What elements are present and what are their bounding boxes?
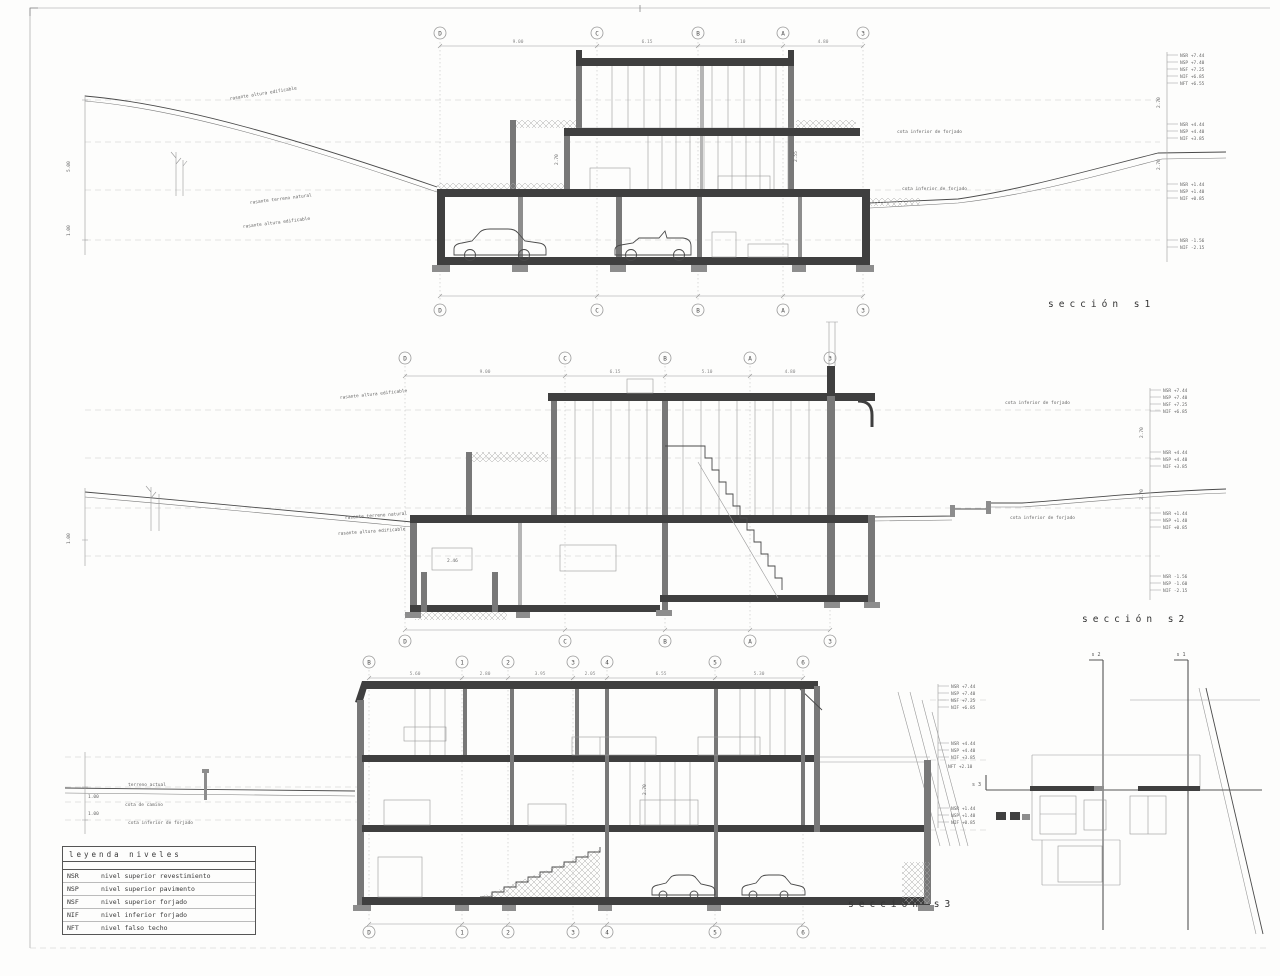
grid-bubble-label: 5 (713, 660, 717, 667)
s3-datum-lines (65, 700, 990, 830)
s1-grid-bubbles-top: D C B A 3 (434, 27, 869, 39)
title-seccion-s2: sección s2 (1082, 614, 1189, 625)
dim-value: 6.15 (642, 39, 653, 45)
level-annotation: NSR +1.44 (1180, 182, 1205, 188)
section-cut-label-s3: s 3 (972, 782, 981, 788)
s2-terrain: 1.00 (66, 486, 1226, 566)
s1-cars (454, 229, 691, 261)
grid-bubble-label: A (781, 31, 785, 38)
height-label: 2.70 (1139, 489, 1145, 500)
grid-bubble-label: D (438, 308, 442, 315)
dim-value: 5.30 (754, 671, 765, 677)
s1-building (432, 50, 874, 272)
s3-cars (652, 875, 805, 899)
height-label: 2.55 (793, 151, 799, 162)
key-plan: s 2 s 1 s 3 NFT +2.10 (948, 652, 1263, 934)
height-label: 1.00 (88, 794, 99, 800)
s1-terrain (82, 95, 1226, 255)
legend-table: NSR nivel superior revestimiento NSP niv… (63, 870, 255, 934)
grid-bubble-label: C (563, 356, 567, 363)
s2-grid-bubbles-bottom: D C B A 3 (399, 635, 836, 647)
legend-abbr: NFT (63, 922, 97, 935)
s3-grid-bubbles-top: B 1 2 3 4 5 6 (363, 656, 809, 668)
grid-bubble-label: 1 (460, 660, 464, 667)
terrain-label: rasante terreno natural (345, 511, 408, 521)
s2-slab-notes: cota inferior de forjado cota inferior d… (447, 400, 1075, 564)
grid-bubble-label: D (403, 639, 407, 646)
level-annotation: NIF -2.15 (1163, 588, 1188, 594)
s1-grid-bubbles-bottom: D C B A 3 (434, 304, 869, 316)
level-annotation: NIF +0.85 (1180, 196, 1205, 202)
s1-left-height-labels: 5.00 1.00 (66, 161, 72, 236)
height-label: 5.00 (66, 161, 72, 172)
height-label: 1.00 (66, 225, 72, 236)
grid-bubble-label: A (748, 639, 752, 646)
legend-label: nivel superior pavimento (97, 883, 255, 896)
level-annotation: NSP +1.40 (951, 813, 976, 819)
legend-label: nivel inferior forjado (97, 909, 255, 922)
grid-bubble-label: 3 (861, 31, 865, 38)
grid-bubble-label: B (663, 639, 667, 646)
level-annotation: NSF +7.25 (1180, 67, 1205, 73)
s2-datum-lines (85, 410, 1160, 556)
grid-bubble-label: A (748, 356, 752, 363)
grid-bubble-label: B (663, 356, 667, 363)
sections-drawing: 9.00 6.15 5.10 4.80 D C B A 3 D C B A 3 … (0, 0, 1280, 976)
legend-spacer (63, 862, 255, 870)
terrain-label: rasante altura edificable (229, 85, 297, 102)
s1-slab-notes: cota inferior de forjado cota inferior d… (897, 129, 967, 192)
grid-bubble-label: C (595, 31, 599, 38)
level-annotation: NIF +0.85 (1163, 525, 1188, 531)
dim-value: 5.10 (735, 39, 746, 45)
s2-level-stacks: NSR +7.44 NSP +7.40 NSF +7.25 NIF +6.85 … (1139, 388, 1188, 600)
level-annotation: NSP +1.40 (1163, 518, 1188, 524)
dim-value: 9.00 (513, 39, 524, 45)
s1-room-heights: 2.70 2.55 (554, 151, 799, 165)
level-annotation: NSP +4.40 (951, 748, 976, 754)
level-annotation: NSR +4.44 (1180, 122, 1205, 128)
terrain-label: rasante altura edificable (340, 388, 408, 401)
level-annotation: NIF -2.15 (1180, 245, 1205, 251)
grid-bubble-label: 4 (605, 660, 609, 667)
level-annotation: NIF +6.85 (951, 705, 976, 711)
grid-bubble-label: 2 (506, 660, 510, 667)
height-label: 2.46 (447, 558, 458, 564)
level-annotation: NSR +4.44 (1163, 450, 1188, 456)
legend-row: NSF nivel superior forjado (63, 896, 255, 909)
level-annotation: NSR +1.44 (951, 806, 976, 812)
grid-bubble-label: 3 (571, 660, 575, 667)
grid-bubble-label: 6 (801, 930, 805, 937)
level-annotation: NSP +7.40 (1180, 60, 1205, 66)
title-seccion-s3: sección s3 (848, 899, 955, 910)
grid-bubble-label: 6 (801, 660, 805, 667)
level-annotation: NSP +7.40 (951, 691, 976, 697)
dim-value: 4.80 (785, 369, 796, 375)
drawing-sheet: 9.00 6.15 5.10 4.80 D C B A 3 D C B A 3 … (0, 0, 1280, 976)
level-annotation: NSF +7.25 (1163, 402, 1188, 408)
level-annotation: NSP +7.40 (1163, 395, 1188, 401)
legend-abbr: NSR (63, 870, 97, 883)
title-seccion-s1: sección s1 (1048, 299, 1155, 310)
dim-value: 6.15 (610, 369, 621, 375)
legend-row: NFT nivel falso techo (63, 922, 255, 935)
level-annotation: NSR +7.44 (1163, 388, 1188, 394)
level-annotation: NSR +4.44 (951, 741, 976, 747)
level-annotation: NIF +6.85 (1163, 409, 1188, 415)
terrain-label: rasante altura edificable (243, 216, 311, 230)
slab-note: cota inferior de forjado (902, 186, 967, 192)
levels-legend: leyenda niveles NSR nivel superior reves… (62, 846, 256, 935)
section-s2: 9.00 6.15 5.10 4.80 D C B A 3 D C B A 3 … (66, 322, 1226, 647)
s3-terrain: 1.00 1.00 (65, 692, 968, 846)
dim-value: 2.80 (480, 671, 491, 677)
grid-bubble-label: A (781, 308, 785, 315)
dim-value: 5.10 (702, 369, 713, 375)
plan-note: NFT +2.10 (948, 764, 973, 770)
grid-bubble-label: 2 (506, 930, 510, 937)
legend-row: NIF nivel inferior forjado (63, 909, 255, 922)
level-annotation: NSR +7.44 (1180, 53, 1205, 59)
dim-value: 5.60 (410, 671, 421, 677)
height-label: 1.00 (66, 533, 72, 544)
grid-bubble-label: B (696, 31, 700, 38)
height-label: 2.70 (642, 784, 648, 795)
dim-value: 6.55 (656, 671, 667, 677)
height-label: 2.70 (1156, 159, 1162, 170)
level-annotation: NIF +6.85 (1180, 74, 1205, 80)
legend-label: nivel falso techo (97, 922, 255, 935)
dim-value: 9.00 (480, 369, 491, 375)
s1-level-stacks: NSR +7.44 NSP +7.40 NSF +7.25 NIF +6.85 … (1156, 52, 1205, 262)
legend-label: nivel superior revestimiento (97, 870, 255, 883)
grid-bubble-label: 3 (861, 308, 865, 315)
grid-bubble-label: 5 (713, 930, 717, 937)
s2-building (405, 322, 880, 620)
legend-title: leyenda niveles (63, 847, 255, 862)
grid-bubble-label: 3 (828, 639, 832, 646)
grid-bubble-label: B (696, 308, 700, 315)
height-label: 2.70 (554, 154, 560, 165)
level-annotation: NIF +3.85 (951, 755, 976, 761)
level-annotation: NSP -1.60 (1163, 581, 1188, 587)
s1-datum-lines (85, 100, 1160, 240)
s3-dim-values: 5.60 2.80 3.95 2.05 6.55 5.30 (410, 671, 765, 677)
slab-note: cota inferior de forjado (1005, 400, 1070, 406)
grid-bubble-label: 4 (605, 930, 609, 937)
s2-grid-bubbles-top: D C B A 3 (399, 352, 836, 364)
grid-bubble-label: D (438, 31, 442, 38)
level-annotation: NSP +4.40 (1163, 457, 1188, 463)
grid-bubble-label: 3 (571, 930, 575, 937)
legend-abbr: NSP (63, 883, 97, 896)
dim-value: 3.95 (535, 671, 546, 677)
level-annotation: NSR -1.56 (1180, 238, 1205, 244)
level-annotation: NSP +4.40 (1180, 129, 1205, 135)
s1-terrain-labels: rasante altura edificable rasante terren… (229, 85, 312, 230)
level-annotation: NSP +1.40 (1180, 189, 1205, 195)
terrain-label: terreno actual (128, 782, 166, 788)
legend-label: nivel superior forjado (97, 896, 255, 909)
level-annotation: NSR -1.56 (1163, 574, 1188, 580)
level-annotation: NIF +3.85 (1180, 136, 1205, 142)
grid-bubble-label: C (595, 308, 599, 315)
s3-car-2 (742, 875, 805, 899)
s2-dim-values: 9.00 6.15 5.10 4.80 (480, 369, 796, 375)
terrain-label: cota de camino (125, 802, 163, 808)
s3-grid-bubbles-bottom: D 1 2 3 4 5 6 (363, 926, 809, 938)
legend-abbr: NSF (63, 896, 97, 909)
height-label: 1.00 (88, 811, 99, 817)
legend-row: NSR nivel superior revestimiento (63, 870, 255, 883)
s1-dim-values: 9.00 6.15 5.10 4.80 (513, 39, 829, 45)
section-cut-label-s2: s 2 (1091, 652, 1100, 658)
section-cut-label-s1: s 1 (1176, 652, 1185, 658)
level-annotation: NIF +3.85 (1163, 464, 1188, 470)
level-annotation: NFT +6.55 (1180, 81, 1205, 87)
level-annotation: NSF +7.25 (951, 698, 976, 704)
grid-bubble-label: B (367, 660, 371, 667)
dim-value: 4.80 (818, 39, 829, 45)
terrain-label: rasante altura edificable (338, 526, 406, 537)
level-annotation: NIF +0.85 (951, 820, 976, 826)
dim-value: 2.05 (585, 671, 596, 677)
height-label: 2.70 (1139, 427, 1145, 438)
grid-bubble-label: D (367, 930, 371, 937)
slab-note: cota inferior de forjado (1010, 515, 1075, 521)
s3-building: 2.70 (353, 681, 934, 911)
grid-bubble-label: D (403, 356, 407, 363)
level-annotation: NSR +7.44 (951, 684, 976, 690)
height-label: 2.70 (1156, 97, 1162, 108)
terrain-label: rasante terreno natural (250, 192, 313, 206)
s3-car-1 (652, 875, 715, 899)
level-annotation: NSR +1.44 (1163, 511, 1188, 517)
grid-bubble-label: 1 (460, 930, 464, 937)
slab-note: cota inferior de forjado (897, 129, 962, 135)
legend-row: NSP nivel superior pavimento (63, 883, 255, 896)
grid-bubble-label: C (563, 639, 567, 646)
slab-note: cota inferior de forjado (128, 820, 193, 826)
section-s1: 9.00 6.15 5.10 4.80 D C B A 3 D C B A 3 … (66, 27, 1226, 316)
legend-abbr: NIF (63, 909, 97, 922)
